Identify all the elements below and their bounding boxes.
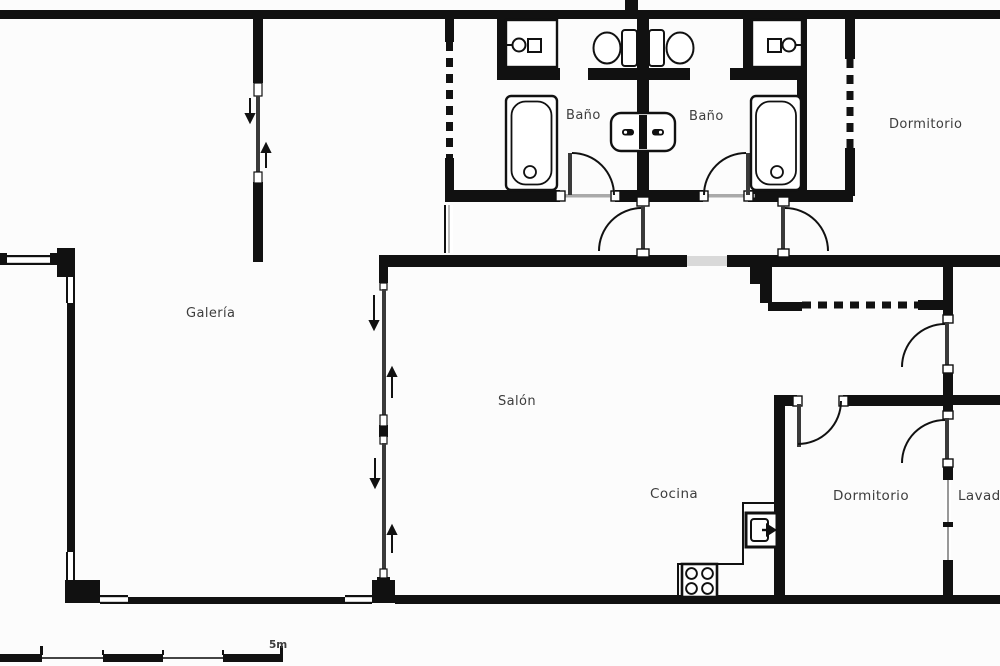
bathtub-icon xyxy=(751,96,801,190)
arrow-down-icon xyxy=(246,98,254,122)
window-galeria-left-2 xyxy=(66,552,75,580)
door-lavadero xyxy=(902,411,953,467)
arrow-up-icon xyxy=(388,526,396,553)
room-label-bano-right: Baño xyxy=(689,109,724,124)
floorplan-page: { "title": "Apartment floor plan", "room… xyxy=(0,0,1000,666)
bidet-icon xyxy=(611,113,675,151)
window-bottom-2 xyxy=(345,595,372,604)
room-label-galeria: Galería xyxy=(186,306,235,321)
window-top-left xyxy=(7,255,50,265)
window-galeria-left-1 xyxy=(66,277,75,303)
room-label-dormitorio-bottom: Dormitorio xyxy=(833,488,909,504)
toilet-icon xyxy=(649,30,694,66)
window-salon-top xyxy=(687,256,727,266)
kitchen-fixtures xyxy=(678,503,777,597)
sliding-door-salon-2 xyxy=(380,436,387,578)
sliding-door-galeria xyxy=(254,83,262,183)
window-lavadero-1 xyxy=(945,480,951,522)
sliding-door-arrows xyxy=(246,98,396,553)
arrow-down-icon xyxy=(371,458,379,487)
door-bano-right xyxy=(699,153,755,201)
scale-bar xyxy=(0,646,283,662)
scale-bar-label: 5m xyxy=(269,639,287,651)
window-lavadero-2 xyxy=(945,527,951,560)
arrow-down-icon xyxy=(370,295,378,329)
arrow-up-icon xyxy=(262,144,270,168)
window-bottom-1 xyxy=(100,595,128,604)
toilet-icon xyxy=(594,30,638,66)
room-label-bano-left: Baño xyxy=(566,108,601,123)
room-label-salon: Salón xyxy=(498,394,536,409)
sliding-door-salon-1 xyxy=(380,283,387,426)
stove-icon xyxy=(682,564,717,597)
floorplan-canvas xyxy=(0,0,1000,666)
door-dormitorio-bottom xyxy=(793,396,848,447)
bathtub-icon xyxy=(506,96,557,190)
sink-icon xyxy=(752,20,802,67)
window-hall-left xyxy=(444,205,453,253)
bathroom-fixtures xyxy=(506,20,802,190)
oven-icon xyxy=(746,513,777,547)
room-label-lavadero: Lavadero xyxy=(958,488,1000,504)
room-label-cocina: Cocina xyxy=(650,486,698,502)
sink-icon xyxy=(506,20,557,67)
door-hall-right xyxy=(778,197,828,257)
room-label-dormitorio-top: Dormitorio xyxy=(889,117,962,132)
door-corridor-right xyxy=(902,315,953,373)
arrow-up-icon xyxy=(388,368,396,398)
sliding-doors xyxy=(254,83,387,578)
door-bano-left xyxy=(556,153,620,201)
door-hall-left xyxy=(599,197,649,257)
